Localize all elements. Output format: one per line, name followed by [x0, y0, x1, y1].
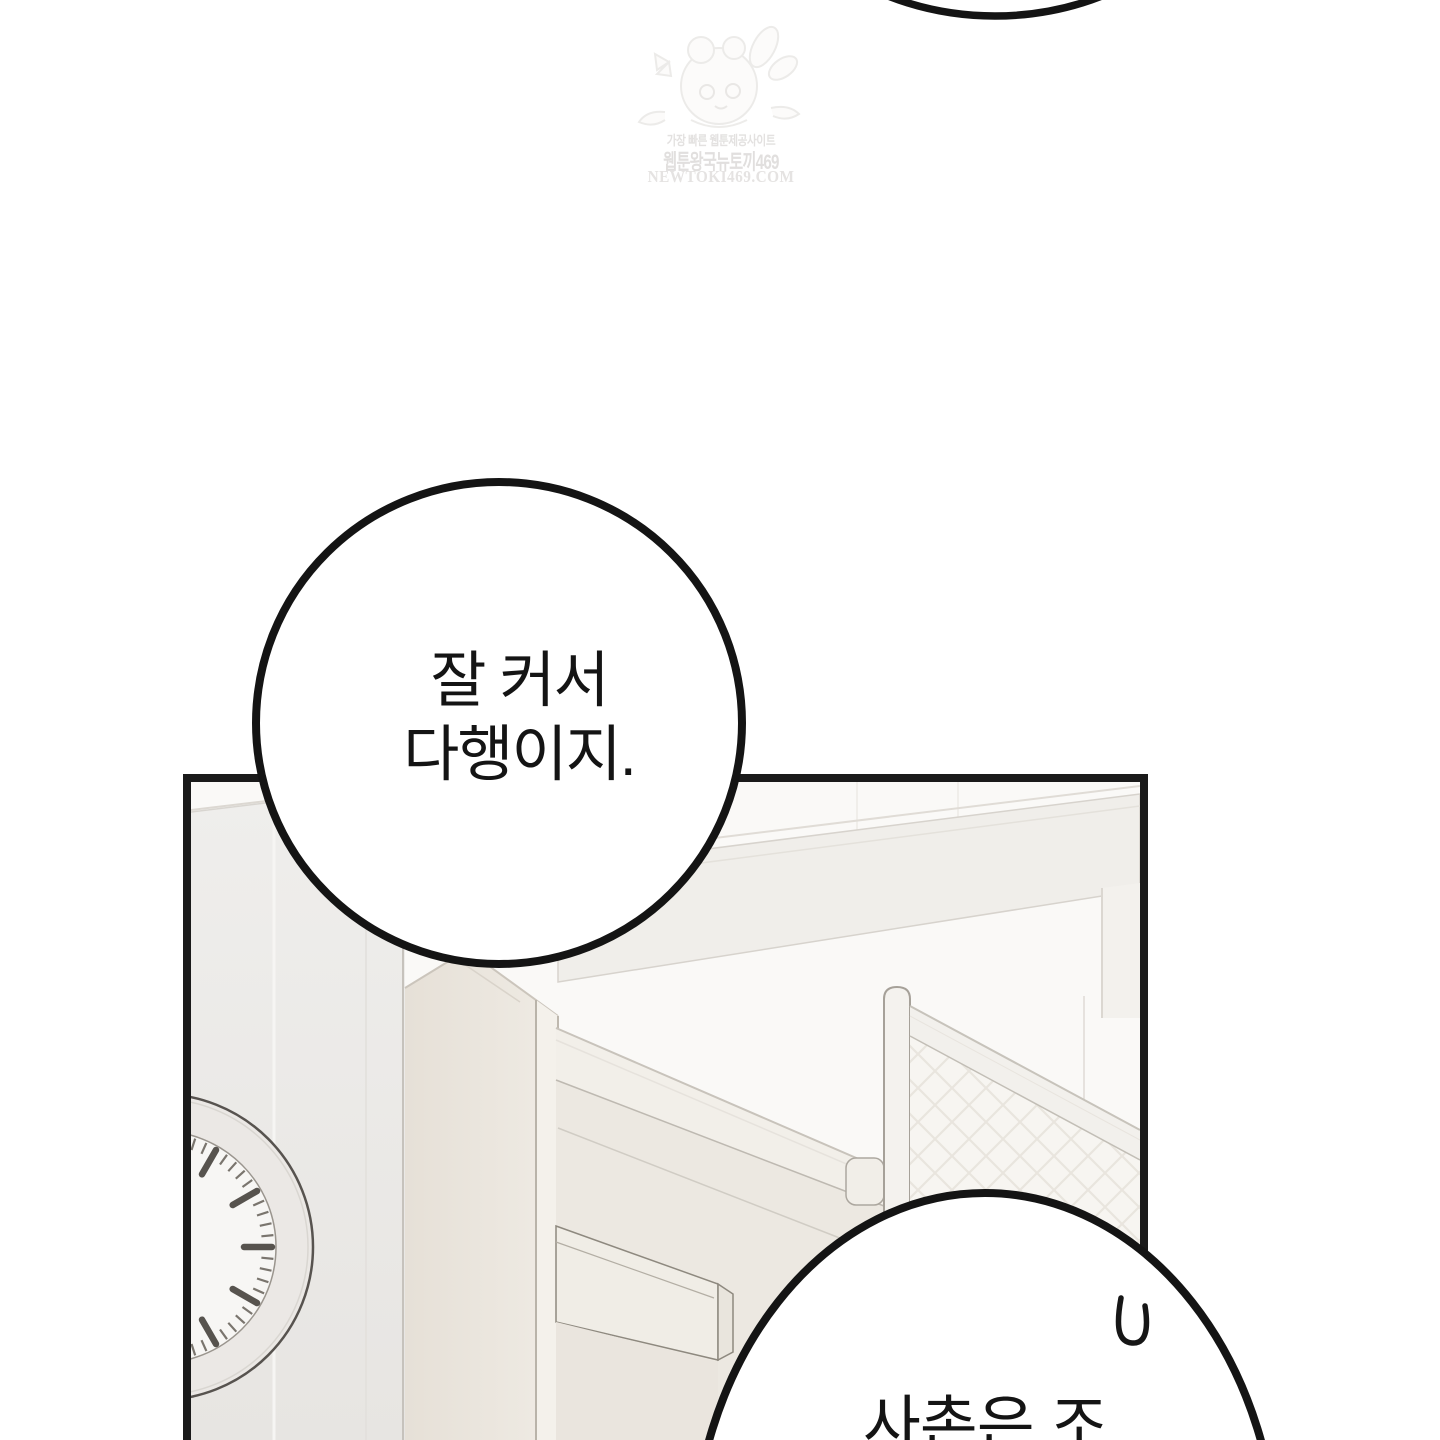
door-frame-pillar [405, 950, 558, 1440]
speech-line: 다행이지. [259, 717, 779, 791]
watermark-tagline: 가장 빠른 웹툰제공사이트 [598, 130, 844, 149]
speech-bubble-main-text: 잘 커서 다행이지. [259, 643, 779, 791]
speech-line: 사촌은 조 [735, 1393, 1235, 1440]
watermark-site-url: NEWTOKI469.COM [586, 167, 856, 187]
watermark-site-name: 웹툰왕국뉴토끼469 [613, 146, 829, 176]
speech-line: 잘 커서 [259, 643, 779, 717]
speech-bubble-bottom-text: 사촌은 조 [735, 1393, 1235, 1440]
comic-panel [183, 774, 1148, 1440]
top-speech-bubble [757, 0, 1233, 16]
mascot-watermark-icon [631, 20, 811, 132]
webtoon-page: 가장 빠른 웹툰제공사이트 웹툰왕국뉴토끼469 NEWTOKI469.COM [0, 0, 1440, 1440]
panel-art [191, 782, 1140, 1440]
gate-post [884, 987, 910, 1230]
